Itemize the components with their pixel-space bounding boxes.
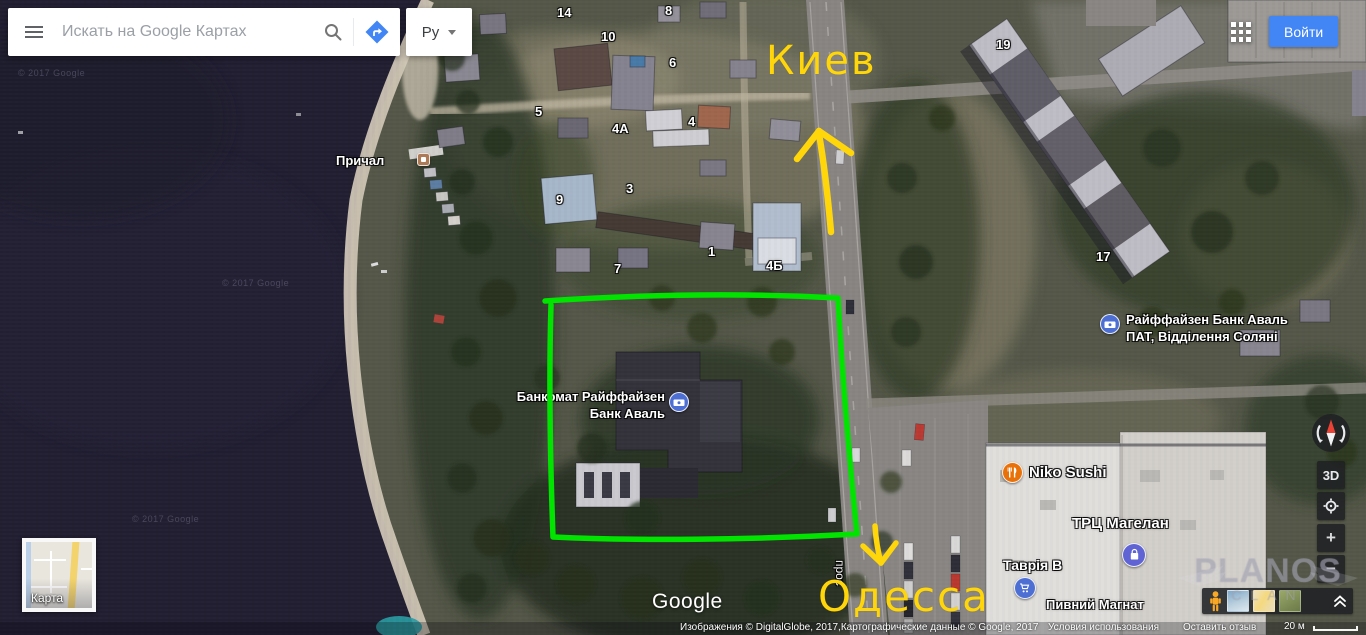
tile-credit: © 2017 Google bbox=[132, 514, 199, 524]
atm-icon[interactable] bbox=[669, 392, 689, 412]
tile-credit: © 2017 Google bbox=[222, 278, 289, 288]
house-number: 4А bbox=[612, 121, 629, 136]
house-number: 3 bbox=[626, 181, 633, 196]
minimap-label: Карта bbox=[31, 591, 63, 605]
poi-label-bank-branch[interactable]: Райффайзен Банк Аваль ПАТ, Відділення Со… bbox=[1126, 311, 1288, 345]
google-apps-icon[interactable] bbox=[1231, 22, 1251, 42]
imagery-bar bbox=[1202, 588, 1353, 614]
imagery-attribution: Изображения © DigitalGlobe, 2017,Картогр… bbox=[680, 622, 1038, 633]
terms-link[interactable]: Условия использования bbox=[1048, 622, 1159, 633]
house-number: 4 bbox=[688, 114, 695, 129]
tile-credit: © 2017 Google bbox=[18, 68, 85, 78]
poi-label-atm[interactable]: Банкомат Райффайзен Банк Аваль bbox=[495, 388, 665, 422]
hamburger-menu-button[interactable] bbox=[8, 8, 60, 56]
house-number: 4Б bbox=[766, 258, 783, 273]
house-number: 6 bbox=[669, 55, 676, 70]
my-location-button[interactable] bbox=[1317, 492, 1345, 520]
feedback-link[interactable]: Оставить отзыв bbox=[1183, 622, 1256, 633]
google-maps-app: © 2017 Google © 2017 Google © 2017 Googl… bbox=[0, 0, 1366, 635]
zoom-out-button[interactable]: − bbox=[1317, 555, 1345, 583]
language-label: Ру bbox=[422, 24, 440, 41]
house-number: 14 bbox=[557, 5, 571, 20]
minimap-toggle[interactable]: Карта bbox=[22, 538, 96, 612]
imagery-thumbnail[interactable] bbox=[1279, 590, 1301, 612]
poi-label-pier[interactable]: Причал bbox=[336, 152, 384, 169]
house-number: 19 bbox=[996, 37, 1010, 52]
expand-chevron-icon[interactable] bbox=[1333, 595, 1347, 608]
house-number: 9 bbox=[556, 192, 563, 207]
signin-button[interactable]: Войти bbox=[1269, 16, 1338, 47]
chevron-down-icon bbox=[448, 30, 456, 35]
poi-label-sushi[interactable]: Niko Sushi bbox=[1029, 464, 1107, 481]
house-number: 10 bbox=[601, 29, 615, 44]
imagery-thumbnail[interactable] bbox=[1227, 590, 1249, 612]
annotation-kiev: Киев bbox=[766, 38, 877, 84]
house-number: 7 bbox=[614, 261, 621, 276]
map-scale-bar bbox=[1313, 626, 1358, 631]
search-input[interactable] bbox=[60, 22, 313, 42]
house-number: 1 bbox=[708, 244, 715, 259]
shopping-bag-icon[interactable] bbox=[1122, 543, 1146, 567]
zoom-in-button[interactable]: + bbox=[1317, 524, 1345, 552]
restaurant-icon[interactable] bbox=[1002, 462, 1023, 483]
bank-branch-icon[interactable] bbox=[1100, 314, 1120, 334]
directions-icon[interactable] bbox=[354, 19, 400, 45]
poi-label-tavria[interactable]: Таврія В bbox=[1003, 557, 1062, 574]
map-scale-label[interactable]: 20 м bbox=[1284, 621, 1305, 632]
poi-label-beer-shop[interactable]: Пивний Магнат bbox=[1046, 596, 1144, 613]
search-icon[interactable] bbox=[313, 22, 353, 42]
compass-control[interactable] bbox=[1311, 413, 1351, 453]
annotation-odessa: Одесса bbox=[818, 572, 990, 621]
language-selector[interactable]: Ру bbox=[406, 8, 472, 56]
search-bar bbox=[8, 8, 400, 56]
house-number: 8 bbox=[665, 3, 672, 18]
pegman-icon[interactable] bbox=[1208, 591, 1223, 612]
pier-icon[interactable] bbox=[417, 153, 430, 166]
grocery-cart-icon[interactable] bbox=[1014, 577, 1036, 599]
google-logo[interactable]: Google bbox=[652, 590, 723, 614]
house-number: 5 bbox=[535, 104, 542, 119]
3d-toggle-button[interactable]: 3D bbox=[1317, 461, 1345, 489]
poi-label-mall[interactable]: ТРЦ Магелан bbox=[1072, 515, 1169, 532]
house-number: 17 bbox=[1096, 249, 1110, 264]
imagery-thumbnail[interactable] bbox=[1253, 590, 1275, 612]
